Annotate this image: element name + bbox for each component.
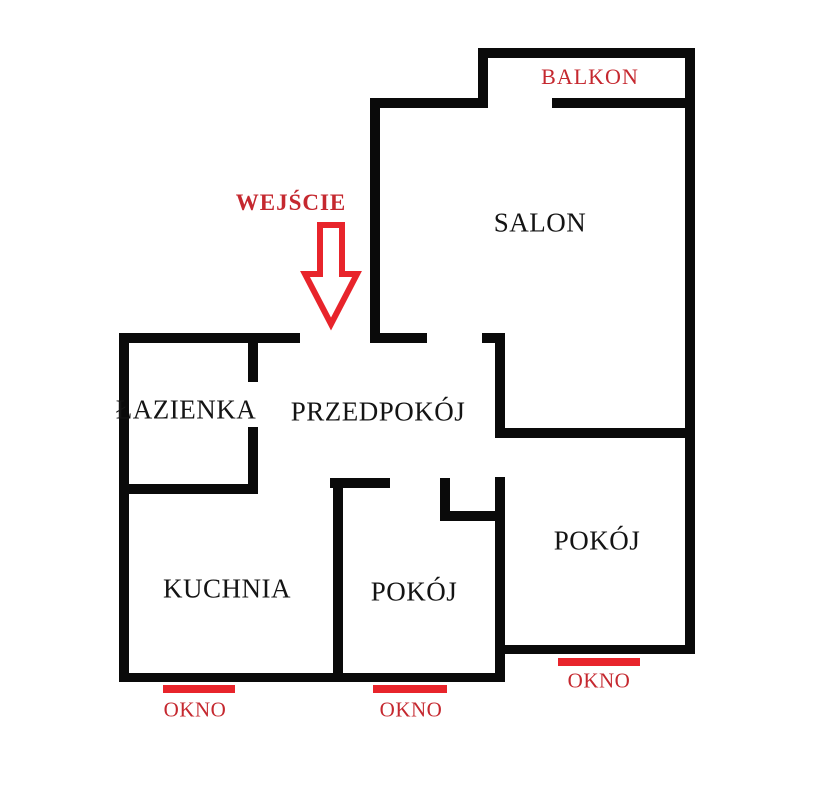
wall-segment-hall-right-lower (495, 477, 505, 682)
room-label-pokoj-right: POKÓJ (554, 526, 641, 557)
wall-segment-lazienka-bottom (119, 484, 258, 494)
room-label-przedpokoj: PRZEDPOKÓJ (291, 397, 466, 428)
window-label-3: OKNO (568, 669, 631, 694)
room-label-pokoj-middle: POKÓJ (371, 577, 458, 608)
wall-segment-balcony-left (478, 48, 488, 108)
room-label-kuchnia: KUCHNIA (163, 574, 291, 605)
wall-segment-hall-right-upper (495, 333, 505, 437)
wall-segment-salon-left (370, 98, 380, 343)
wall-segment-hall-notch-side (440, 478, 450, 521)
room-label-salon: SALON (494, 208, 587, 239)
room-label-lazienka: ŁAZIENKA (116, 395, 256, 426)
window-bar-3 (558, 658, 640, 666)
window-bar-2 (373, 685, 447, 693)
wall-segment-balcony-top (478, 48, 695, 58)
wall-segment-kuchnia-pokoj-divider (333, 478, 343, 682)
down-arrow-icon (305, 225, 357, 324)
window-bar-1 (163, 685, 235, 693)
wall-segment-lazienka-right-upper (248, 343, 258, 382)
wall-segment-bottom-outer (119, 673, 505, 682)
wall-segment-pokoj-right-bottom (495, 645, 695, 654)
wall-segment-right-outer (685, 48, 695, 654)
wall-segment-left-outer (119, 333, 129, 682)
window-label-1: OKNO (164, 698, 227, 723)
balcony-label: BALKON (541, 64, 639, 90)
floor-plan-canvas: BALKON WEJŚCIE SALONŁAZIENKAPRZEDPOKÓJKU… (0, 0, 831, 800)
entrance-label: WEJŚCIE (236, 190, 347, 216)
wall-segment-salon-pokoj-divider (495, 428, 695, 438)
window-label-2: OKNO (380, 698, 443, 723)
wall-segment-lazienka-right-lower (248, 427, 258, 494)
wall-segment-balcony-bottom-right (552, 98, 695, 108)
wall-segment-salon-top (370, 98, 488, 108)
wall-segment-entry-wall-left (119, 333, 300, 343)
